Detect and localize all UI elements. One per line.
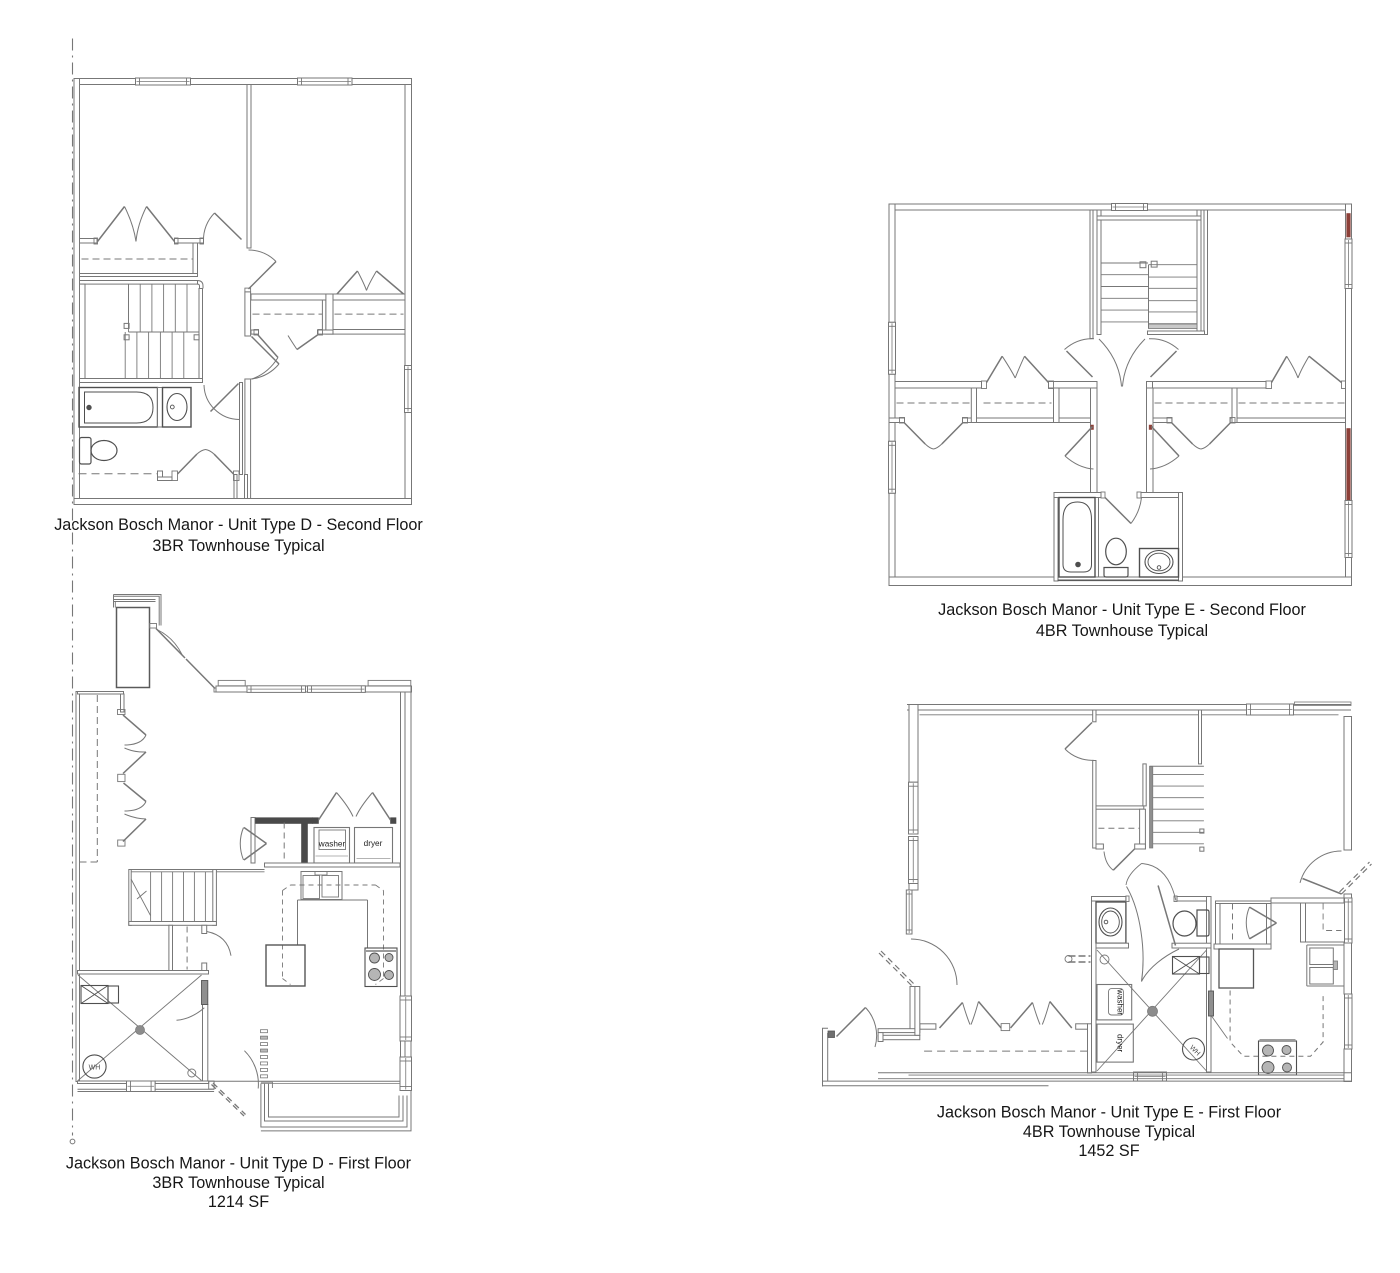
svg-text:dryer: dryer — [364, 839, 383, 848]
svg-text:Jackson Bosch Manor - Unit Typ: Jackson Bosch Manor - Unit Type D - Seco… — [54, 516, 423, 534]
svg-text:4BR Townhouse Typical: 4BR Townhouse Typical — [1023, 1123, 1195, 1141]
svg-text:washer: washer — [318, 840, 346, 849]
svg-text:dryer: dryer — [1116, 1034, 1125, 1053]
svg-text:1452 SF: 1452 SF — [1078, 1142, 1139, 1160]
svg-text:4BR Townhouse Typical: 4BR Townhouse Typical — [1036, 622, 1208, 640]
svg-text:Jackson Bosch Manor - Unit Typ: Jackson Bosch Manor - Unit Type D - Firs… — [66, 1155, 412, 1173]
svg-text:3BR Townhouse Typical: 3BR Townhouse Typical — [152, 537, 324, 555]
svg-text:3BR Townhouse Typical: 3BR Townhouse Typical — [152, 1174, 324, 1192]
svg-text:1214 SF: 1214 SF — [208, 1193, 269, 1211]
svg-text:Jackson Bosch Manor - Unit Typ: Jackson Bosch Manor - Unit Type E - Firs… — [937, 1104, 1282, 1122]
svg-text:washer: washer — [1116, 988, 1125, 1015]
svg-text:Jackson Bosch Manor - Unit Typ: Jackson Bosch Manor - Unit Type E - Seco… — [938, 601, 1306, 619]
svg-text:WH: WH — [89, 1065, 101, 1072]
